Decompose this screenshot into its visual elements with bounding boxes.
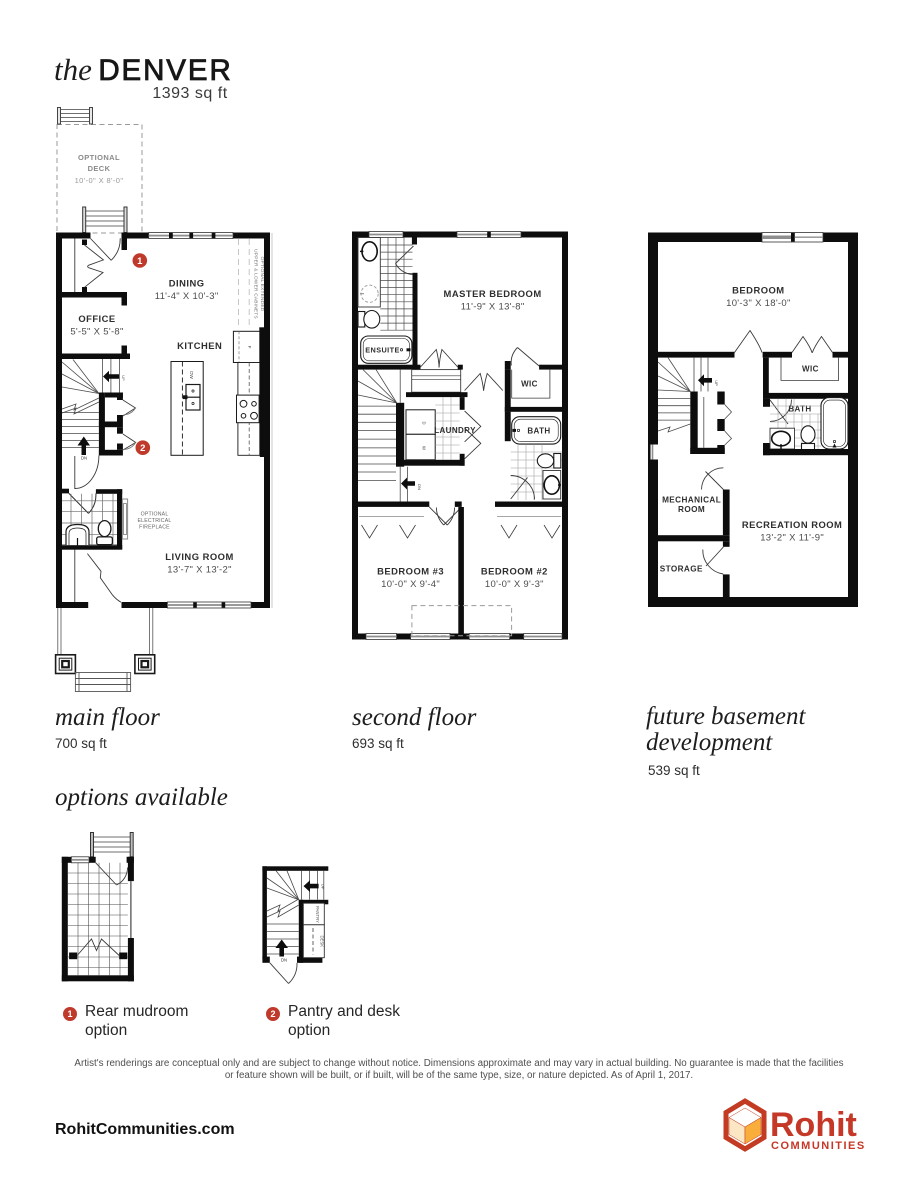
svg-text:KITCHEN: KITCHEN (177, 340, 222, 351)
svg-text:COMMUNITIES: COMMUNITIES (771, 1140, 866, 1152)
svg-text:UP: UP (714, 380, 719, 386)
svg-text:11'-4" X 10'-3": 11'-4" X 10'-3" (155, 291, 219, 302)
svg-text:RECREATION ROOM: RECREATION ROOM (742, 519, 843, 530)
svg-text:10'-0" X 9'-4": 10'-0" X 9'-4" (381, 579, 440, 590)
svg-text:DN: DN (81, 456, 87, 461)
svg-text:UPPER & LOWER CABINETS: UPPER & LOWER CABINETS (253, 249, 259, 319)
svg-text:13'-2" X 11'-9": 13'-2" X 11'-9" (760, 533, 824, 544)
svg-text:DESK: DESK (320, 935, 325, 947)
svg-text:ENSUITE: ENSUITE (365, 346, 399, 355)
svg-text:DECK: DECK (88, 164, 111, 173)
svg-text:OPTIONAL: OPTIONAL (141, 512, 169, 518)
svg-text:2: 2 (140, 443, 145, 454)
svg-text:OFFICE: OFFICE (78, 313, 115, 324)
svg-text:11'-9" X 13'-8": 11'-9" X 13'-8" (461, 302, 525, 313)
svg-text:ELECTRICAL: ELECTRICAL (138, 518, 172, 524)
svg-text:F: F (247, 346, 252, 349)
svg-text:FIREPLACE: FIREPLACE (139, 525, 170, 531)
svg-text:BEDROOM #3: BEDROOM #3 (377, 566, 444, 577)
svg-text:UP: UP (321, 884, 326, 890)
svg-text:OPTIONAL EXTENDED: OPTIONAL EXTENDED (259, 257, 265, 312)
svg-text:W: W (422, 446, 427, 450)
svg-text:MASTER BEDROOM: MASTER BEDROOM (444, 288, 542, 299)
svg-text:10'-3" X 18'-0": 10'-3" X 18'-0" (726, 298, 791, 309)
svg-text:STORAGE: STORAGE (660, 565, 703, 574)
svg-text:ROOM: ROOM (678, 505, 705, 514)
svg-text:LIVING ROOM: LIVING ROOM (165, 551, 234, 562)
svg-text:WIC: WIC (802, 365, 819, 374)
svg-text:DN: DN (417, 484, 422, 490)
svg-text:DN: DN (281, 958, 287, 963)
svg-text:BEDROOM #2: BEDROOM #2 (481, 566, 548, 577)
svg-text:Rohit: Rohit (770, 1106, 857, 1144)
svg-text:D: D (422, 421, 427, 424)
svg-text:BEDROOM: BEDROOM (732, 285, 784, 296)
svg-text:13'-7" X 13'-2": 13'-7" X 13'-2" (167, 565, 232, 576)
svg-text:OPTIONAL: OPTIONAL (78, 153, 120, 162)
svg-text:1: 1 (137, 256, 143, 267)
svg-text:MECHANICAL: MECHANICAL (662, 496, 721, 505)
svg-text:BATH: BATH (527, 427, 550, 436)
svg-text:LAUNDRY: LAUNDRY (434, 426, 476, 435)
svg-text:UP: UP (121, 375, 125, 381)
svg-text:DW: DW (189, 371, 194, 379)
svg-text:10'-0" X 9'-3": 10'-0" X 9'-3" (485, 579, 544, 590)
svg-text:PANTRY: PANTRY (315, 906, 320, 923)
svg-text:5'-5" X 5'-8": 5'-5" X 5'-8" (70, 327, 123, 338)
svg-text:DINING: DINING (169, 278, 205, 289)
svg-text:10'-0" X 8'-0": 10'-0" X 8'-0" (75, 176, 124, 185)
svg-text:WIC: WIC (521, 380, 538, 389)
